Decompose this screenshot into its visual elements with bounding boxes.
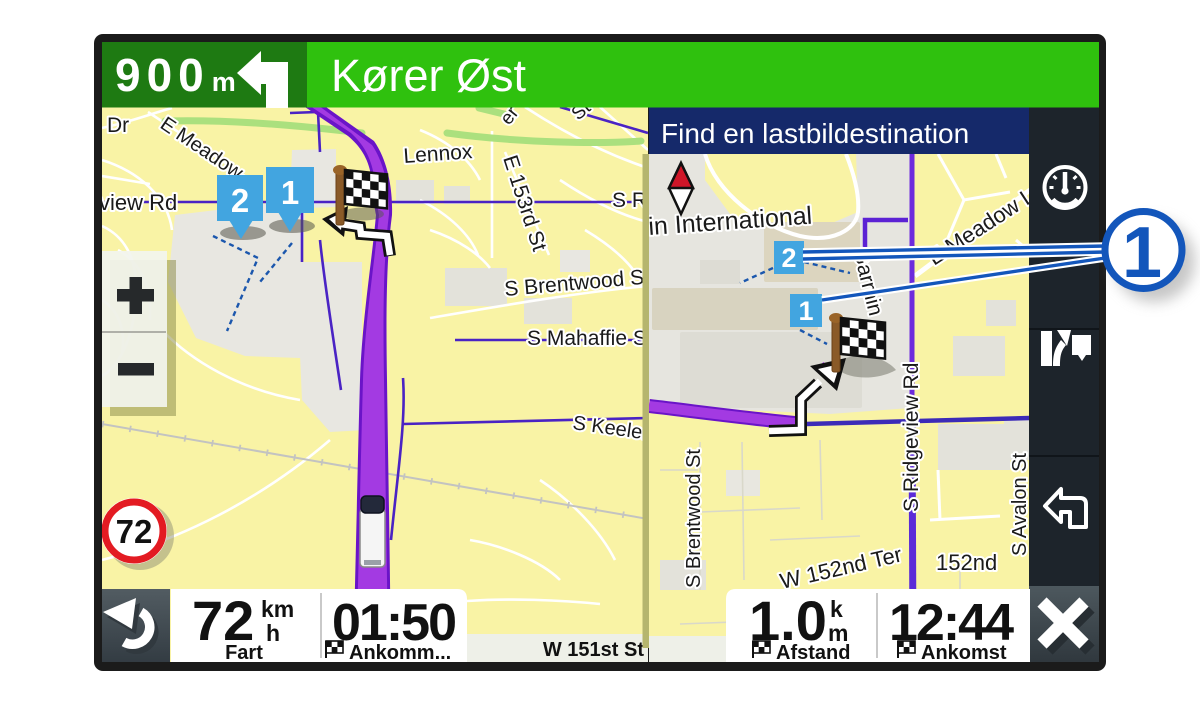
svg-text:view Rd: view Rd [99,190,177,215]
svg-text:1: 1 [281,174,299,211]
svg-text:1: 1 [798,296,813,326]
svg-text:152nd: 152nd [936,550,997,575]
svg-text:Dr: Dr [107,114,129,137]
svg-text:Fart: Fart [225,642,263,664]
svg-text:k: k [830,596,843,622]
svg-text:Afstand: Afstand [776,642,850,664]
svg-text:Find en lastbildestination: Find en lastbildestination [661,118,969,149]
svg-text:S Brentwood St: S Brentwood St [683,449,705,588]
svg-text:S Ridgeview Rd: S Ridgeview Rd [900,363,923,512]
svg-text:Ankomm...: Ankomm... [349,642,451,664]
svg-text:2: 2 [781,243,796,273]
svg-text:Kører Øst: Kører Øst [331,50,527,101]
svg-text:km: km [261,596,294,622]
svg-text:Ankomst: Ankomst [921,642,1007,664]
svg-text:S R: S R [612,189,647,212]
svg-text:S Mahaffie S: S Mahaffie S [527,327,647,350]
svg-text:2: 2 [231,182,249,219]
svg-text:1: 1 [1122,213,1162,293]
svg-text:S Avalon St: S Avalon St [1009,453,1031,556]
svg-text:72: 72 [116,513,153,550]
svg-text:Lennox: Lennox [403,140,474,168]
svg-text:h: h [266,620,280,646]
svg-text:W 151st St: W 151st St [543,639,644,661]
